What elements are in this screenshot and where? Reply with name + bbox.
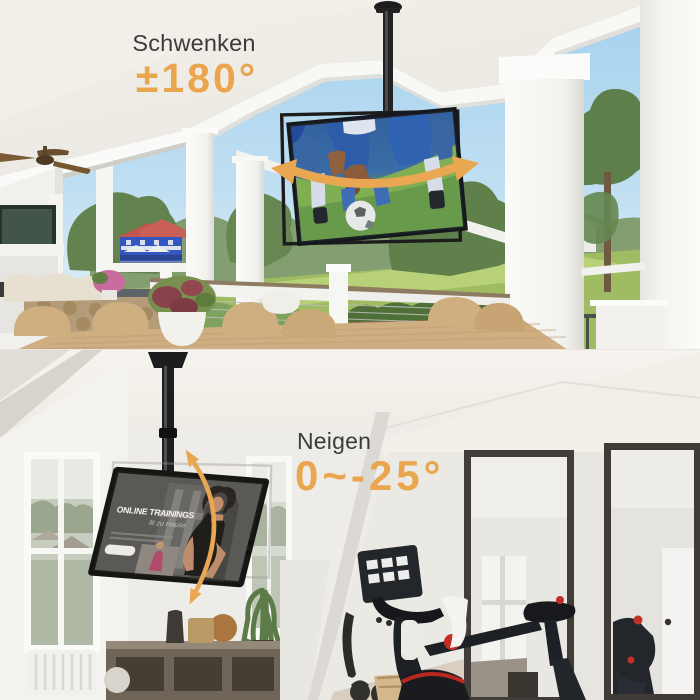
svg-text:±180°: ±180° xyxy=(136,55,258,101)
svg-text:Schwenken: Schwenken xyxy=(132,30,255,56)
svg-text:0~-25°: 0~-25° xyxy=(295,452,444,499)
svg-text:Neigen: Neigen xyxy=(297,428,371,454)
